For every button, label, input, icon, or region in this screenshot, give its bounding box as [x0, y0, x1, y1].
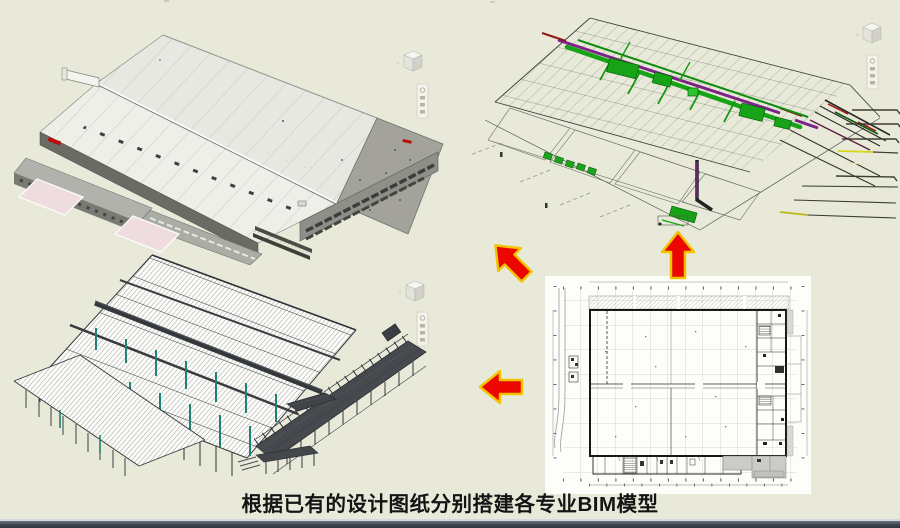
navigation-toolbar-icon: [417, 84, 428, 118]
viewcube-icon: [856, 23, 882, 43]
ahu-row: [543, 152, 596, 175]
slide-caption: 根据已有的设计图纸分别搭建各专业BIM模型: [0, 491, 900, 518]
slide-canvas: 根据已有的设计图纸分别搭建各专业BIM模型: [0, 0, 900, 528]
mep-model-view: [450, 0, 900, 255]
floor-plan-drawing: [545, 276, 811, 494]
arrow-left-icon: [478, 368, 524, 406]
canopy-hatch: [589, 296, 789, 309]
stair-core: [624, 457, 636, 473]
viewcube-icon: [399, 281, 425, 301]
slide-footer-bar: [0, 519, 900, 528]
viewcube-icon: [397, 51, 423, 71]
navigation-toolbar-icon: [417, 312, 428, 346]
navigation-toolbar-icon: [867, 55, 878, 89]
mep-wireframe-model: [470, 1, 900, 230]
arrow-up-left-icon: [488, 238, 534, 284]
structural-model-view: [0, 250, 460, 495]
stair-core: [759, 396, 771, 405]
steel-frame-model: [14, 255, 426, 476]
architectural-building: [14, 0, 443, 265]
stair-core: [759, 326, 770, 335]
arrow-up-icon: [656, 230, 700, 280]
architectural-model-view: [0, 0, 460, 265]
roof-duct: [66, 70, 99, 87]
